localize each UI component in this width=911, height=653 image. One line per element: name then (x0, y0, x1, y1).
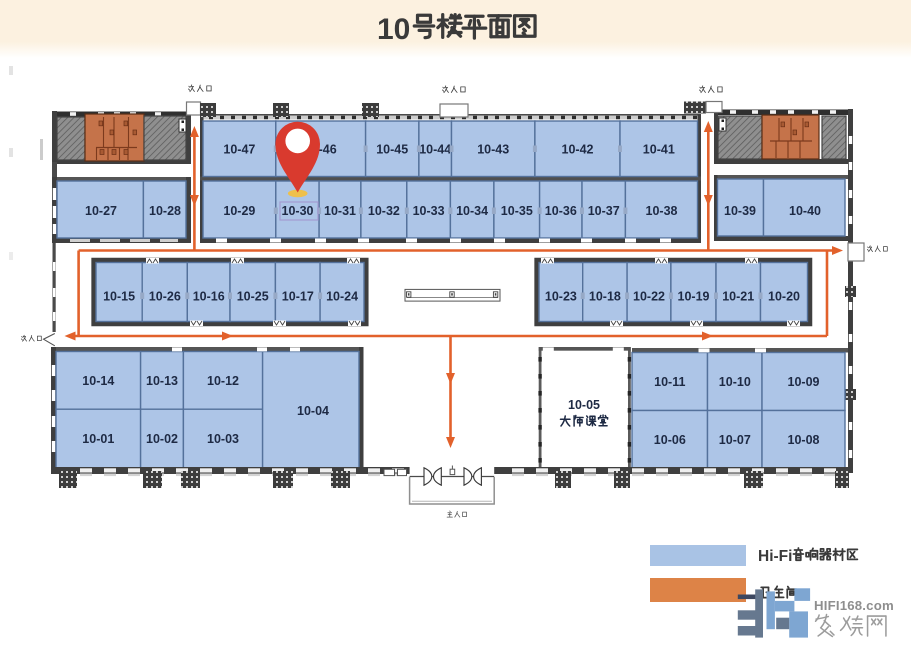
svg-text:10-40: 10-40 (789, 204, 821, 218)
svg-text:10-33: 10-33 (413, 204, 445, 218)
svg-text:10-10: 10-10 (719, 375, 751, 389)
svg-text:10-21: 10-21 (722, 290, 754, 304)
svg-text:10-32: 10-32 (368, 204, 400, 218)
svg-text:10-44: 10-44 (419, 143, 451, 157)
svg-text:10-08: 10-08 (788, 433, 820, 447)
svg-text:10-01: 10-01 (82, 432, 114, 446)
svg-text:10-29: 10-29 (223, 204, 255, 218)
svg-text:10-25: 10-25 (237, 290, 269, 304)
svg-text:10-12: 10-12 (207, 374, 239, 388)
svg-text:10-16: 10-16 (193, 290, 225, 304)
svg-text:10-26: 10-26 (149, 290, 181, 304)
svg-text:10-30: 10-30 (282, 204, 314, 218)
svg-text:10-07: 10-07 (719, 433, 751, 447)
svg-text:10: 10 (377, 13, 410, 46)
svg-text:10-42: 10-42 (562, 143, 594, 157)
svg-text:10-38: 10-38 (646, 204, 678, 218)
svg-text:10-04: 10-04 (297, 404, 329, 418)
svg-text:10-22: 10-22 (633, 290, 665, 304)
svg-text:10-35: 10-35 (501, 204, 533, 218)
svg-text:10-17: 10-17 (282, 290, 314, 304)
svg-text:10-06: 10-06 (654, 433, 686, 447)
svg-text:10-03: 10-03 (207, 432, 239, 446)
svg-text:10-37: 10-37 (588, 204, 620, 218)
svg-text:10-19: 10-19 (678, 290, 710, 304)
svg-text:10-34: 10-34 (456, 204, 488, 218)
svg-text:HIFI168.com: HIFI168.com (814, 598, 894, 613)
svg-text:10-20: 10-20 (768, 290, 800, 304)
svg-text:10-14: 10-14 (82, 374, 114, 388)
svg-text:10-31: 10-31 (324, 204, 356, 218)
svg-text:10-47: 10-47 (223, 143, 255, 157)
svg-text:10-23: 10-23 (545, 290, 577, 304)
svg-text:10-15: 10-15 (103, 290, 135, 304)
svg-text:10-02: 10-02 (146, 432, 178, 446)
svg-text:10-18: 10-18 (589, 290, 621, 304)
svg-text:10-13: 10-13 (146, 374, 178, 388)
svg-text:10-09: 10-09 (788, 375, 820, 389)
svg-text:10-24: 10-24 (326, 290, 358, 304)
svg-text:10-11: 10-11 (654, 375, 685, 389)
svg-text:Hi-Fi: Hi-Fi (758, 548, 792, 565)
svg-text:10-27: 10-27 (85, 204, 117, 218)
svg-text:10-43: 10-43 (477, 143, 509, 157)
svg-text:10-41: 10-41 (643, 143, 675, 157)
svg-text:10-39: 10-39 (724, 204, 756, 218)
svg-text:10-45: 10-45 (376, 143, 408, 157)
svg-text:10-05: 10-05 (568, 398, 600, 412)
svg-text:10-36: 10-36 (545, 204, 577, 218)
svg-text:10-28: 10-28 (149, 204, 181, 218)
